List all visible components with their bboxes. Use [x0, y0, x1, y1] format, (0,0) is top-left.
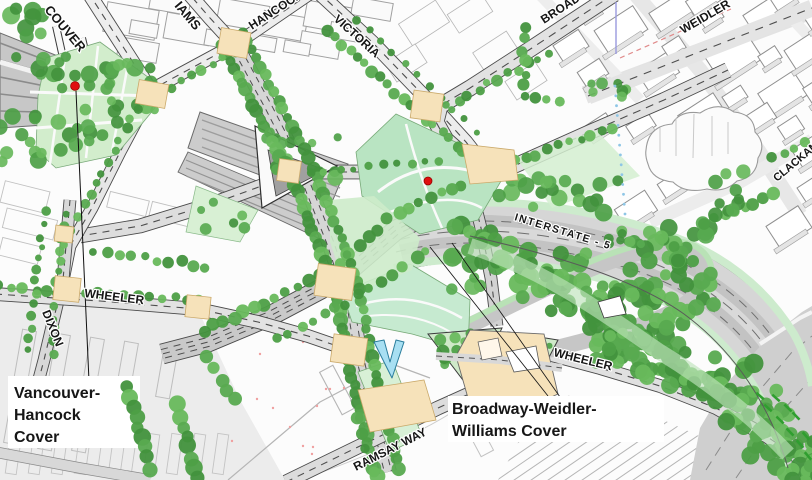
svg-text:Vancouver-: Vancouver- — [14, 385, 100, 402]
svg-text:Hancock: Hancock — [14, 407, 81, 424]
svg-text:Williams Cover: Williams Cover — [452, 423, 567, 440]
svg-text:Cover: Cover — [14, 429, 59, 446]
svg-text:Broadway-Weidler-: Broadway-Weidler- — [452, 401, 597, 418]
